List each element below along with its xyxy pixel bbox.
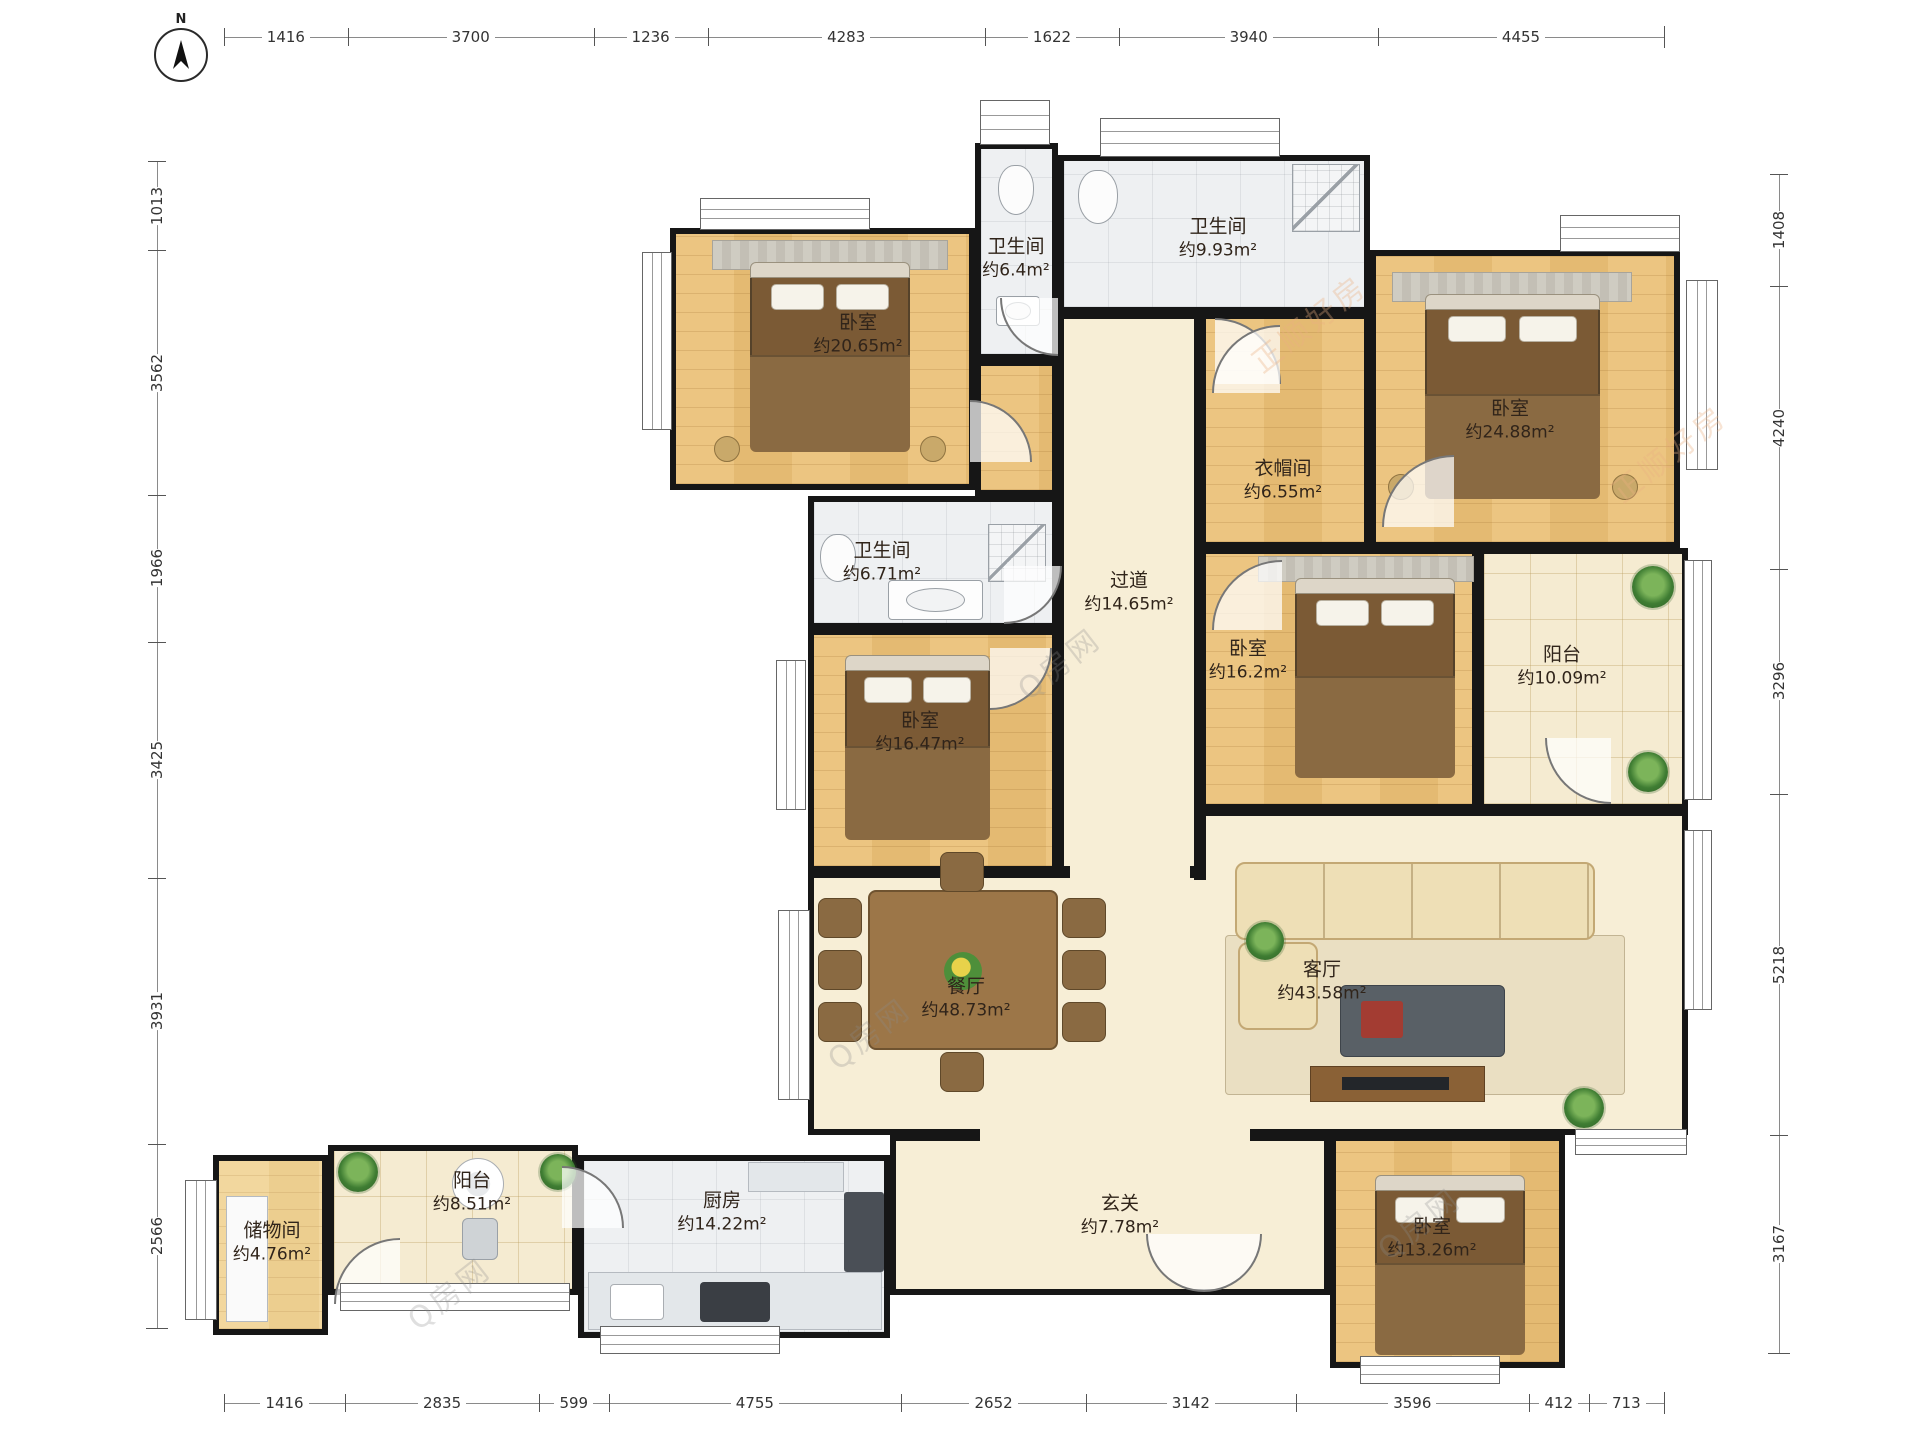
dining-chair xyxy=(818,898,862,938)
label-balcony-bottom: 阳台约8.51m² xyxy=(433,1169,511,1216)
floor-plan: 卧室约20.65m² 卫生间约6.4m² 卫生间约9.93m² 卧室约24.88… xyxy=(0,0,1920,1440)
bed-headboard xyxy=(1425,294,1600,310)
north-arrow-icon xyxy=(154,28,208,82)
opening-living-entry xyxy=(980,1127,1250,1141)
window xyxy=(1575,1129,1687,1155)
plant xyxy=(1632,566,1674,608)
kitchen-counter-top xyxy=(748,1162,844,1192)
window xyxy=(1684,830,1712,1010)
label-bedroom-middle-right: 卧室约16.2m² xyxy=(1209,637,1287,684)
window xyxy=(980,100,1050,145)
pillow xyxy=(1381,600,1434,626)
window xyxy=(600,1326,780,1354)
dimension-segment: 3940 xyxy=(1119,26,1378,48)
bed-blanket xyxy=(1375,1263,1525,1355)
dimension-segment: 3562 xyxy=(146,250,168,494)
dimension-segment: 1013 xyxy=(146,161,168,250)
pillow xyxy=(1316,600,1369,626)
dimension-segment: 599 xyxy=(539,1392,608,1414)
label-bathroom-middle: 卫生间约6.71m² xyxy=(843,539,921,586)
dimension-segment: 4455 xyxy=(1378,26,1664,48)
dimension-segment: 2835 xyxy=(345,1392,539,1414)
tray xyxy=(1361,1001,1403,1037)
label-balcony-right: 阳台约10.09m² xyxy=(1517,643,1606,690)
pillow xyxy=(771,284,824,310)
bed-headboard xyxy=(1295,578,1455,594)
dimension-segment: 2566 xyxy=(146,1144,168,1328)
plant xyxy=(1564,1088,1604,1128)
window xyxy=(1686,280,1718,470)
dimension-segment: 1966 xyxy=(146,495,168,642)
dimension-segment: 3931 xyxy=(146,878,168,1145)
plant xyxy=(1628,752,1668,792)
washbasin xyxy=(888,580,983,620)
dining-chair xyxy=(1062,1002,1106,1042)
pillow xyxy=(923,677,971,703)
label-bedroom-top-right: 卧室约24.88m² xyxy=(1465,397,1554,444)
nightstand xyxy=(714,436,740,462)
toilet xyxy=(1078,170,1118,224)
dimension-segment: 3425 xyxy=(146,642,168,878)
shower xyxy=(1292,164,1360,232)
ruler-right: 1408 4240 3296 5218 3167 xyxy=(1768,174,1790,1354)
dining-chair xyxy=(940,852,984,892)
ruler-bottom: 1416 2835 599 4755 2652 3142 3596 412 71… xyxy=(224,1392,1665,1414)
dimension-segment: 2652 xyxy=(901,1392,1086,1414)
dimension-segment: 3596 xyxy=(1296,1392,1529,1414)
window xyxy=(778,910,810,1100)
nightstand xyxy=(1612,474,1638,500)
dimension-segment: 1622 xyxy=(985,26,1120,48)
label-storage: 储物间约4.76m² xyxy=(233,1219,311,1266)
window xyxy=(776,660,806,810)
bed xyxy=(1375,1175,1525,1355)
label-entry: 玄关约7.78m² xyxy=(1081,1192,1159,1239)
dimension-segment: 5218 xyxy=(1768,794,1790,1135)
dimension-segment: 713 xyxy=(1589,1392,1664,1414)
dining-chair xyxy=(940,1052,984,1092)
sofa xyxy=(1235,862,1595,940)
dining-chair xyxy=(818,1002,862,1042)
dining-chair xyxy=(818,950,862,990)
window xyxy=(185,1180,217,1320)
label-bathroom-top-small: 卫生间约6.4m² xyxy=(982,235,1049,282)
ruler-left: 1013 3562 1966 3425 3931 2566 xyxy=(146,161,168,1329)
label-dining: 餐厅约48.73m² xyxy=(921,975,1010,1022)
dimension-segment: 3700 xyxy=(348,26,594,48)
window xyxy=(1684,560,1712,800)
compass: N xyxy=(148,12,214,82)
plant xyxy=(338,1152,378,1192)
dimension-segment: 3167 xyxy=(1768,1135,1790,1353)
plant xyxy=(1246,922,1284,960)
window xyxy=(700,198,870,230)
dimension-segment: 412 xyxy=(1529,1392,1589,1414)
label-living: 客厅约43.58m² xyxy=(1277,958,1366,1005)
kitchen-sink xyxy=(610,1284,664,1320)
label-bedroom-top-left: 卧室约20.65m² xyxy=(813,311,902,358)
bed xyxy=(1295,578,1455,778)
bed-blanket xyxy=(845,746,990,840)
stool xyxy=(462,1218,498,1260)
dimension-segment: 4755 xyxy=(609,1392,902,1414)
toilet xyxy=(998,165,1034,215)
dimension-segment: 1416 xyxy=(224,1392,345,1414)
dining-chair xyxy=(1062,898,1106,938)
window xyxy=(1360,1356,1500,1384)
pillow xyxy=(1448,316,1506,342)
window xyxy=(340,1283,570,1311)
dimension-segment: 3296 xyxy=(1768,569,1790,795)
pillow xyxy=(864,677,912,703)
ruler-top: 1416 3700 1236 4283 1622 3940 4455 xyxy=(224,26,1665,48)
pillow xyxy=(1519,316,1577,342)
label-hallway: 过道约14.65m² xyxy=(1084,569,1173,616)
bed-headboard xyxy=(750,262,910,278)
dimension-segment: 1236 xyxy=(594,26,708,48)
dining-chair xyxy=(1062,950,1106,990)
dimension-segment: 3142 xyxy=(1086,1392,1296,1414)
dimension-segment: 1416 xyxy=(224,26,348,48)
label-kitchen: 厨房约14.22m² xyxy=(677,1189,766,1236)
tv-cabinet xyxy=(1310,1066,1485,1102)
fridge xyxy=(844,1192,884,1272)
compass-n-label: N xyxy=(148,12,214,27)
dimension-segment: 4240 xyxy=(1768,286,1790,568)
bed-headboard xyxy=(1375,1175,1525,1191)
label-bedroom-bottom: 卧室约13.26m² xyxy=(1387,1215,1476,1262)
label-bedroom-middle-left: 卧室约16.47m² xyxy=(875,709,964,756)
dimension-segment: 4283 xyxy=(708,26,985,48)
tv-screen xyxy=(1342,1077,1449,1091)
bed-blanket xyxy=(750,355,910,452)
label-closet: 衣帽间约6.55m² xyxy=(1244,457,1322,504)
opening-dining-living xyxy=(1192,880,1206,1127)
label-bathroom-top: 卫生间约9.93m² xyxy=(1179,215,1257,262)
nightstand xyxy=(920,436,946,462)
window xyxy=(1100,118,1280,157)
bed-headboard xyxy=(845,655,990,671)
dimension-segment: 1408 xyxy=(1768,174,1790,286)
window xyxy=(642,252,672,430)
bed-blanket xyxy=(1295,676,1455,778)
opening-hallway-dining xyxy=(1070,864,1190,878)
pillow xyxy=(836,284,889,310)
stove xyxy=(700,1282,770,1322)
window xyxy=(1560,215,1680,252)
